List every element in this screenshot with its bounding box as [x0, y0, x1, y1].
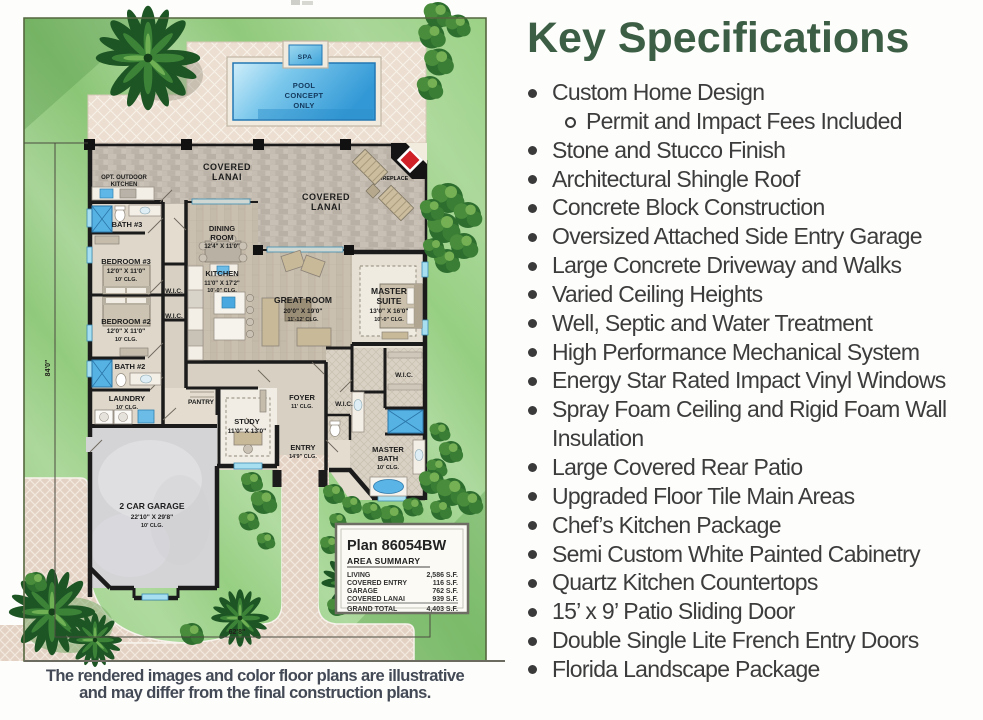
svg-text:STUDY: STUDY	[234, 417, 259, 426]
svg-text:ONLY: ONLY	[293, 101, 314, 110]
svg-text:12'4" X 11'0": 12'4" X 11'0"	[204, 244, 240, 250]
svg-text:W.I.C.: W.I.C.	[335, 401, 353, 408]
svg-text:FOYER: FOYER	[289, 393, 315, 402]
svg-text:12'0" X 11'0": 12'0" X 11'0"	[107, 328, 146, 335]
svg-text:10' CLG.: 10' CLG.	[377, 465, 400, 471]
svg-text:BATH #2: BATH #2	[115, 362, 146, 371]
svg-text:OPT. OUTDOOR: OPT. OUTDOOR	[101, 175, 147, 181]
svg-text:116 S.F.: 116 S.F.	[433, 580, 458, 587]
svg-text:10' CLG.: 10' CLG.	[115, 277, 138, 283]
svg-text:DINING: DINING	[209, 224, 235, 233]
svg-text:11'0" X 13'0": 11'0" X 13'0"	[228, 428, 267, 435]
svg-text:BATH: BATH	[378, 454, 398, 463]
svg-text:ROOM: ROOM	[210, 233, 233, 242]
svg-text:11'-12' CLG.: 11'-12' CLG.	[287, 317, 319, 323]
svg-text:GARAGE: GARAGE	[347, 588, 378, 595]
svg-text:14'9" CLG.: 14'9" CLG.	[289, 454, 317, 460]
svg-text:10' CLG.: 10' CLG.	[115, 337, 138, 343]
svg-text:COVERED ENTRY: COVERED ENTRY	[347, 580, 407, 587]
svg-text:MASTER: MASTER	[371, 286, 407, 296]
svg-text:KITCHEN: KITCHEN	[111, 182, 138, 188]
svg-text:AREA SUMMARY: AREA SUMMARY	[347, 556, 420, 566]
svg-text:22'10" X 29'8": 22'10" X 29'8"	[131, 514, 174, 521]
svg-text:COVERED: COVERED	[302, 192, 350, 202]
svg-text:10'-0" CLG.: 10'-0" CLG.	[207, 288, 237, 294]
svg-text:W.I.C.: W.I.C.	[395, 372, 413, 379]
svg-text:KITCHEN: KITCHEN	[205, 269, 238, 278]
svg-text:20'0" X 19'0": 20'0" X 19'0"	[284, 308, 323, 315]
svg-text:LAUNDRY: LAUNDRY	[109, 394, 145, 403]
svg-text:BEDROOM #3: BEDROOM #3	[101, 257, 151, 266]
svg-text:PANTRY: PANTRY	[188, 399, 215, 406]
svg-text:SPA: SPA	[298, 54, 313, 61]
svg-text:LANAI: LANAI	[311, 202, 341, 212]
svg-text:LANAI: LANAI	[212, 172, 242, 182]
svg-text:2,586 S.F.: 2,586 S.F.	[426, 572, 458, 579]
svg-text:10'-0" CLG.: 10'-0" CLG.	[374, 317, 404, 323]
svg-text:13'0" X 16'0": 13'0" X 16'0"	[370, 308, 409, 315]
svg-text:BATH #3: BATH #3	[112, 220, 143, 229]
svg-text:4,403 S.F.: 4,403 S.F.	[426, 606, 458, 613]
svg-text:762 S.F.: 762 S.F.	[432, 588, 458, 595]
svg-text:GRAND TOTAL: GRAND TOTAL	[347, 606, 398, 613]
svg-text:COVERED LANAI: COVERED LANAI	[347, 596, 405, 603]
svg-text:LIVING: LIVING	[347, 572, 371, 579]
svg-text:ENTRY: ENTRY	[290, 443, 315, 452]
svg-text:10' CLG.: 10' CLG.	[116, 405, 139, 411]
svg-text:W.I.C.: W.I.C.	[165, 288, 183, 295]
svg-text:BEDROOM #2: BEDROOM #2	[101, 317, 151, 326]
svg-text:2 CAR GARAGE: 2 CAR GARAGE	[119, 501, 185, 511]
svg-text:W.I.C.: W.I.C.	[165, 313, 183, 320]
svg-text:CONCEPT: CONCEPT	[285, 91, 324, 100]
svg-text:62'8": 62'8"	[229, 629, 246, 636]
svg-text:12'0" X 11'0": 12'0" X 11'0"	[107, 268, 146, 275]
svg-text:GREAT ROOM: GREAT ROOM	[274, 295, 332, 305]
svg-text:COVERED: COVERED	[203, 162, 251, 172]
svg-text:11'0" X 17'2": 11'0" X 17'2"	[204, 281, 240, 287]
svg-text:11' CLG.: 11' CLG.	[291, 404, 313, 410]
svg-text:10' CLG.: 10' CLG.	[141, 523, 164, 529]
svg-text:Plan 86054BW: Plan 86054BW	[347, 538, 446, 554]
svg-text:MASTER: MASTER	[372, 445, 404, 454]
svg-text:SUITE: SUITE	[376, 296, 401, 306]
svg-text:POOL: POOL	[293, 81, 316, 90]
svg-text:939 S.F.: 939 S.F.	[432, 596, 458, 603]
svg-text:84'0": 84'0"	[45, 360, 52, 377]
